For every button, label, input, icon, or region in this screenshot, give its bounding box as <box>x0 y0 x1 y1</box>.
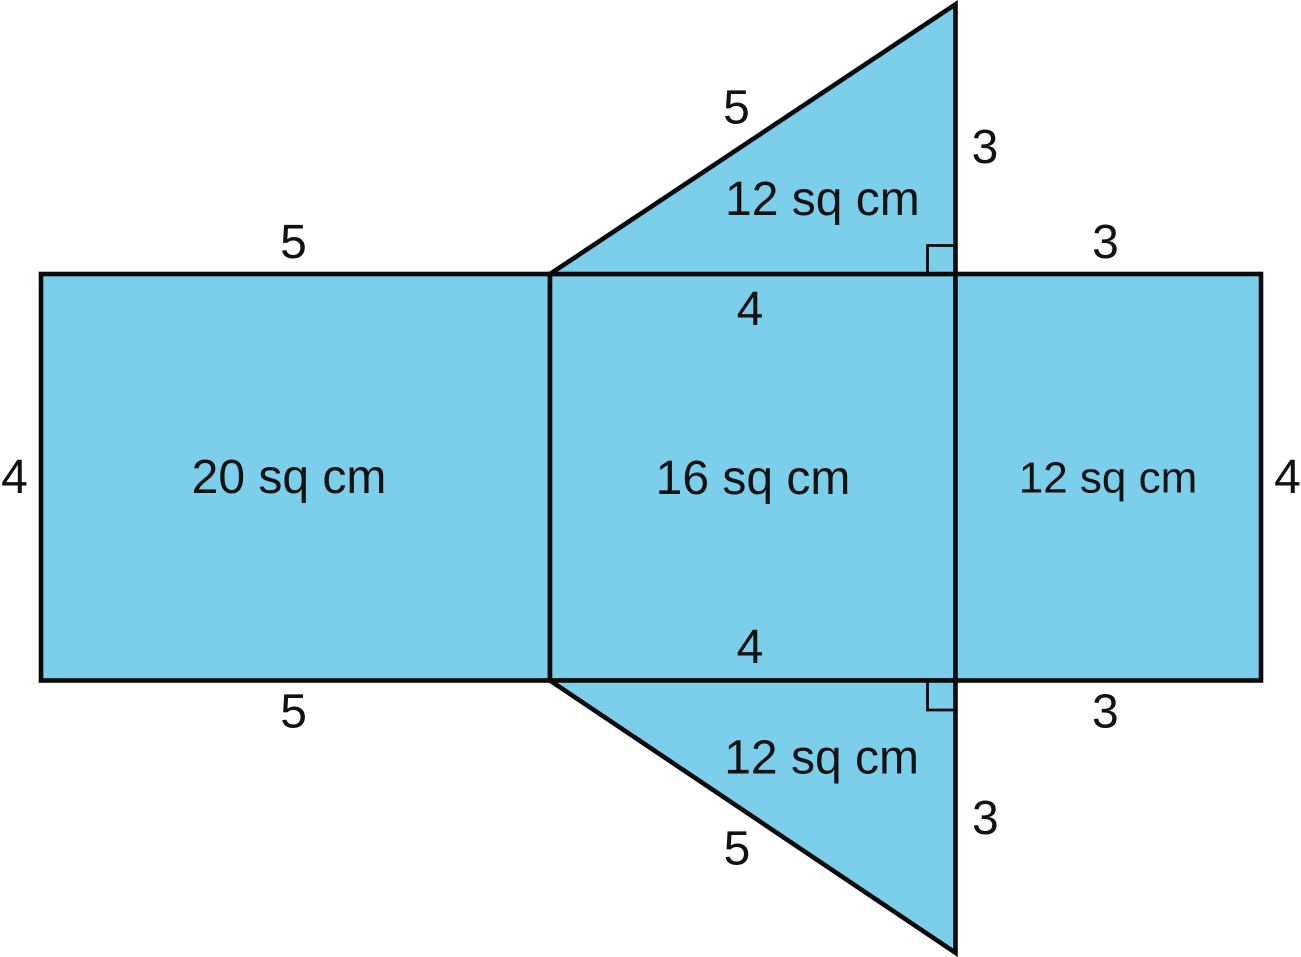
svg-text:4: 4 <box>1274 451 1301 504</box>
svg-text:12 sq cm: 12 sq cm <box>725 173 920 226</box>
svg-text:4: 4 <box>737 283 764 336</box>
svg-text:3: 3 <box>972 121 999 174</box>
svg-text:3: 3 <box>1092 216 1119 269</box>
svg-text:5: 5 <box>723 82 750 135</box>
svg-text:4: 4 <box>737 621 764 674</box>
svg-text:5: 5 <box>280 686 307 739</box>
svg-text:4: 4 <box>1 451 28 504</box>
svg-text:3: 3 <box>972 792 999 845</box>
svg-text:3: 3 <box>1092 686 1119 739</box>
svg-text:20 sq cm: 20 sq cm <box>192 451 387 504</box>
svg-text:16 sq cm: 16 sq cm <box>656 452 851 505</box>
svg-text:12 sq cm: 12 sq cm <box>1019 454 1198 503</box>
svg-text:5: 5 <box>724 823 751 876</box>
svg-text:12 sq cm: 12 sq cm <box>724 732 919 785</box>
svg-text:5: 5 <box>280 216 307 269</box>
